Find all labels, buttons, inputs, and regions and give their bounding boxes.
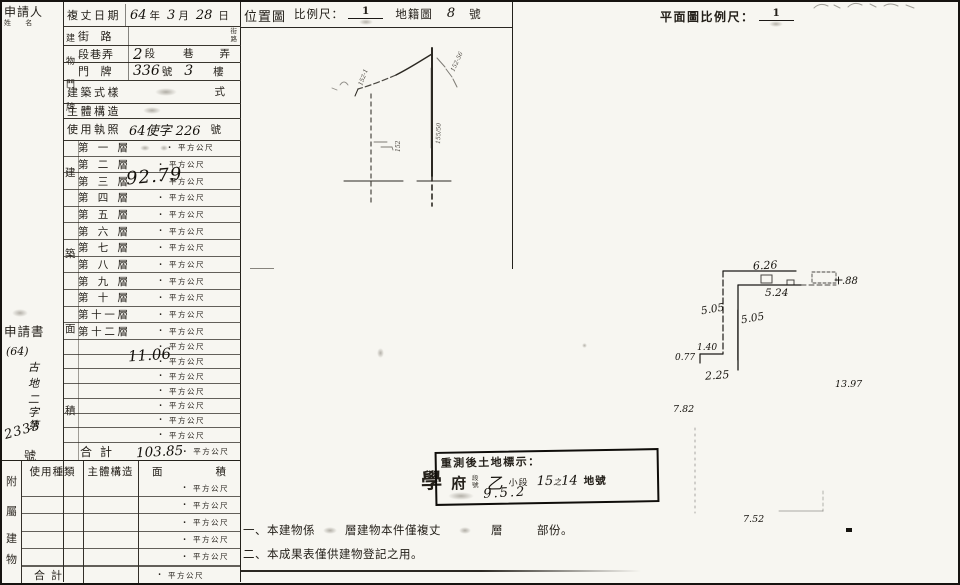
decimal-dot: . (183, 516, 193, 526)
street-side-note: 街路 (231, 28, 238, 42)
area-unit-label: 平方公尺 (169, 309, 215, 320)
decimal-dot: . (159, 428, 169, 438)
attached-rows: .平方公尺.平方公尺.平方公尺.平方公尺.平方公尺 (22, 480, 240, 566)
plan-scale-fraction: 1 (759, 8, 794, 27)
dim-upper: 5.24 (765, 287, 788, 299)
alley-unit: 弄 (220, 46, 231, 61)
area-unit-label: 平方公尺 (193, 500, 238, 511)
map-annotation: 152-56 (449, 51, 464, 73)
license-label: 使用執照 (67, 121, 125, 137)
decimal-dot: . (159, 224, 169, 234)
illegible-mark (448, 492, 474, 500)
floor-row-12: 第十二層.平方公尺 (64, 323, 241, 340)
blank-area-row: .平方公尺 (64, 428, 241, 443)
house-number-label: 門 牌 (78, 63, 128, 79)
total-row: 合計 103.85 . 平方公尺 (64, 443, 241, 460)
application-char: 古 (28, 359, 39, 375)
structure-row: 主體構造 (64, 103, 241, 119)
attached-blank-row: .平方公尺 (22, 514, 240, 531)
floor-label: 第九層 (78, 274, 128, 289)
floor-label: 第六層 (78, 224, 128, 239)
floor-label: 第一層 (78, 140, 128, 155)
area-unit-label: 平方公尺 (169, 226, 215, 237)
floor-label: 第七層 (78, 240, 128, 255)
dim-left: 5.05 (700, 301, 725, 317)
floor-row-1: 第一層.平方公尺 (64, 140, 241, 157)
house-number-row: 門 牌 336 號 3 樓 (64, 62, 241, 81)
floor-label: 第十一層 (78, 307, 128, 322)
floor-row-9: 第九層.平方公尺 (64, 273, 241, 290)
application-year: (64) (6, 345, 29, 358)
area-unit-label: 平方公尺 (169, 276, 215, 287)
survey-date-month-value: 3 (167, 8, 175, 23)
map-annotation: 152 (395, 140, 402, 152)
extra-area-value: 11.06 (127, 345, 171, 366)
decimal-dot: . (159, 291, 169, 301)
map-box-bottom-tick (250, 268, 274, 269)
illegible-denominator (769, 21, 783, 27)
attached-side-char: 附 (6, 473, 18, 489)
section-label: 段巷弄 (78, 46, 128, 62)
decimal-dot: . (159, 324, 169, 334)
dim-right: 13.97 (835, 379, 863, 390)
area-unit-label: 平方公尺 (169, 415, 215, 426)
floor-unit: 樓 (213, 64, 224, 79)
survey-date-year-value: 64 (130, 8, 147, 23)
decimal-dot: . (159, 369, 169, 379)
dim-top: 6.26 (753, 258, 778, 272)
use-type-header: 使用種類 (22, 464, 83, 479)
area-unit-label: 平方公尺 (169, 386, 215, 397)
month-unit: 月 (178, 8, 189, 23)
decimal-dot: . (183, 550, 193, 560)
applicant-sublabel: 姓 名 (4, 18, 62, 28)
day-unit: 日 (218, 8, 229, 23)
decimal-dot: . (159, 208, 169, 218)
attached-total-row: 合計 . 平方公尺 (22, 566, 240, 583)
attached-blank-row: .平方公尺 (22, 497, 240, 514)
blank-area-row: .平方公尺 (64, 369, 241, 384)
survey-result-form-sheet: 申請人 姓 名 複丈日期 64 年 3 月 28 日 街 路 (0, 0, 960, 585)
corner-scribble (810, 1, 950, 11)
divider (241, 570, 641, 572)
plan-mark (846, 528, 852, 532)
decimal-dot: . (159, 308, 169, 318)
attached-total-label: 合計 (34, 567, 68, 583)
dim-lower: 2.25 (704, 368, 730, 383)
scale-label: 比例尺： (294, 6, 344, 22)
area-unit-label: 平方公尺 (169, 341, 215, 352)
floor-row-7: 第七層.平方公尺 (64, 240, 241, 257)
stamp-lot-label: 地號 (584, 472, 607, 487)
survey-date-label: 複丈日期 (67, 7, 125, 23)
scale-fraction: 1 (348, 6, 383, 25)
dim-step: 1.40 (697, 343, 717, 353)
application-number: 2333 (3, 418, 43, 443)
structure-header: 主體構造 (83, 464, 138, 479)
area-unit-label: 平方公尺 (169, 242, 215, 253)
total-label: 合計 (80, 443, 136, 460)
stamp-section-name: 府 (451, 472, 466, 493)
attached-side-char: 建 (6, 530, 18, 546)
decimal-dot: . (183, 481, 193, 491)
area-unit-label: 平方公尺 (169, 259, 215, 270)
decimal-dot: . (159, 384, 169, 394)
year-unit: 年 (150, 8, 161, 23)
lane-unit: 巷 (183, 46, 194, 61)
stamp-lot-number: 15之14 (536, 473, 577, 489)
left-table: 申請人 姓 名 複丈日期 64 年 3 月 28 日 街 路 (2, 2, 241, 582)
footnote-2: 二、本成果表僅供建物登記之用。 (243, 546, 673, 562)
floor-label: 第二層 (78, 157, 128, 172)
footnote-1: 一、本建物係層建物本件僅複丈層部份。 (243, 522, 673, 538)
survey-date-row: 複丈日期 64 年 3 月 28 日 (64, 4, 241, 27)
map-annotation: 155/50 (435, 123, 443, 145)
floor-row-8: 第八層.平方公尺 (64, 257, 241, 274)
map-annotation: 152-1 (357, 68, 369, 87)
dim-right-top: .88 (842, 276, 858, 287)
decimal-dot: . (183, 533, 193, 543)
dim-step-left: 0.77 (675, 353, 695, 363)
location-map-header: 位置圖 比例尺： 1 地籍圖 8 號 (240, 2, 512, 28)
application-char: 地 (28, 375, 39, 391)
illegible-mark (143, 107, 161, 114)
address-group-label: 建物 門牌 (66, 28, 78, 120)
attached-side-char: 物 (6, 551, 18, 567)
attached-header-row: 使用種類 主體構造 面積 (22, 463, 240, 479)
decimal-dot: . (168, 141, 178, 151)
floor-label: 第八層 (78, 257, 128, 272)
attached-blank-row: .平方公尺 (22, 532, 240, 549)
floor-row-4: 第四層.平方公尺 (64, 190, 241, 207)
floor-row-10: 第十層.平方公尺 (64, 290, 241, 307)
area-unit-label: 平方公尺 (169, 292, 215, 303)
illegible-denominator (359, 19, 373, 25)
house-number-value: 336 (133, 63, 160, 79)
stamp-small-labels: 段號 (472, 475, 479, 490)
decimal-dot: . (159, 399, 169, 409)
area-header: 面積 (138, 464, 240, 479)
total-value: 103.85 (136, 442, 184, 460)
location-map-box: 位置圖 比例尺： 1 地籍圖 8 號 (240, 2, 513, 269)
area-unit-label: 平方公尺 (169, 192, 215, 203)
dim-inner: 5.05 (740, 310, 765, 326)
area-unit-label: 平方公尺 (169, 326, 215, 337)
dim-bottom: 7.52 (743, 514, 764, 525)
dim-left-low: 7.82 (673, 404, 694, 415)
street-row: 街 路 街路 (64, 26, 241, 46)
scan-smudge (582, 343, 587, 348)
attached-blank-row: .平方公尺 (22, 480, 240, 497)
decimal-dot: . (159, 258, 169, 268)
illegible-mark (155, 88, 177, 96)
license-row: 使用執照 64使字 226 號 (64, 118, 241, 141)
floor-row-5: 第五層.平方公尺 (64, 207, 241, 224)
footnotes: 一、本建物係層建物本件僅複丈層部份。 二、本成果表僅供建物登記之用。 (243, 522, 673, 570)
blank-area-row: .平方公尺 (64, 399, 241, 414)
cadastral-sheet-number: 8 (447, 6, 455, 21)
plan-header: 平面圖比例尺： 1 (660, 8, 798, 27)
floor-label: 第五層 (78, 207, 128, 222)
attached-blank-row: .平方公尺 (22, 549, 240, 566)
area-unit-label: 平方公尺 (168, 570, 214, 581)
decimal-dot: . (183, 498, 193, 508)
application-label: 申請書 (4, 321, 62, 340)
plan-scale-label: 平面圖比例尺： (660, 8, 755, 25)
stamp-building-number: 9.5.2 (483, 485, 527, 502)
decimal-dot: . (159, 274, 169, 284)
style-unit: 式 (215, 84, 226, 99)
attached-side-char: 屬 (6, 503, 18, 519)
cadastral-sheet-label: 地籍圖 (395, 6, 433, 22)
area-unit-label: 平方公尺 (178, 142, 224, 153)
area-unit-label: 平方公尺 (169, 430, 215, 441)
floor-label: 第十二層 (78, 324, 128, 339)
number-unit: 號 (162, 64, 173, 79)
decimal-dot: . (159, 413, 169, 423)
footnote-number: 一、 (243, 522, 267, 538)
decimal-dot: . (159, 241, 169, 251)
area-unit-label: 平方公尺 (169, 400, 215, 411)
location-map-sketch: 152-1 152-56 152 155/50 (240, 28, 510, 268)
floor-label: 第十層 (78, 290, 128, 305)
decimal-dot: . (159, 191, 169, 201)
floor-number-value: 3 (184, 63, 193, 79)
application-number-cell: 申請書 (64) 古 地 二 字 第 2333 號 (4, 307, 62, 467)
attached-building-section: 附 屬 建 物 使用種類 主體構造 面積 .平方公尺.平方公尺.平方公尺.平方公… (2, 460, 240, 583)
section-unit: 段 (145, 46, 156, 61)
blank-area-row: .平方公尺 (64, 384, 241, 399)
floor-label: 第三層 (78, 174, 128, 189)
street-label: 街 路 (78, 28, 128, 44)
floor-plan-sketch: 6.26 5.24 .88 5.05 5.05 1.40 0.77 2.25 1… (665, 250, 957, 540)
cadastral-sheet-unit: 號 (469, 6, 481, 22)
floor-label: 第四層 (78, 190, 128, 205)
area-unit-label: 平方公尺 (193, 534, 238, 545)
applicant-cell: 申請人 姓 名 (4, 3, 62, 29)
license-unit: 號 (211, 122, 222, 137)
license-value: 64使字 226 (129, 120, 201, 139)
area-unit-label: 平方公尺 (193, 551, 238, 562)
style-row: 建築式樣 式 (64, 80, 241, 104)
footnote-number: 二、 (243, 546, 267, 562)
scan-smudge (377, 348, 384, 358)
area-unit-label: 平方公尺 (169, 371, 215, 382)
section-row: 段巷弄 2 段 巷 弄 (64, 45, 241, 63)
survey-date-day-value: 28 (196, 8, 213, 23)
area-unit-label: 平方公尺 (193, 446, 239, 457)
floor-row-11: 第十一層.平方公尺 (64, 307, 241, 324)
area-unit-label: 平方公尺 (193, 517, 238, 528)
area-unit-label: 平方公尺 (169, 209, 215, 220)
blank-area-row: .平方公尺 (64, 414, 241, 429)
section-value: 2 (133, 45, 143, 63)
illegible-mark (12, 309, 28, 317)
area-unit-label: 平方公尺 (169, 356, 215, 367)
location-map-title: 位置圖 (244, 6, 286, 25)
area-unit-label: 平方公尺 (193, 483, 238, 494)
floor-row-6: 第六層.平方公尺 (64, 223, 241, 240)
